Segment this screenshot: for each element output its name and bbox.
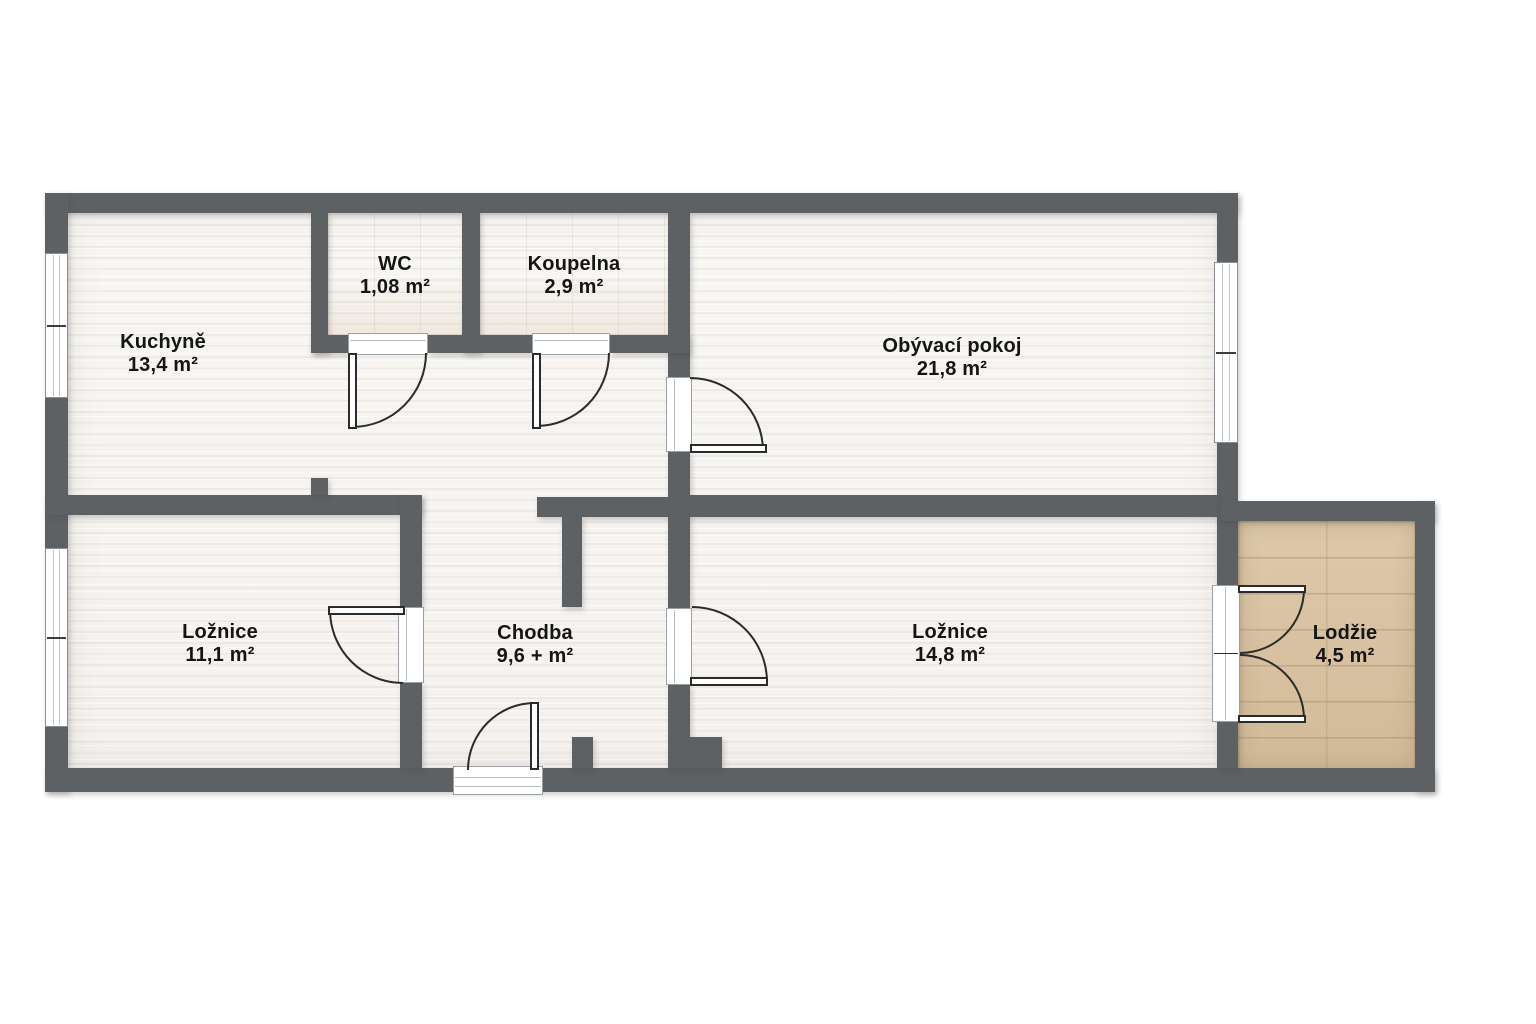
wall-hall-bedroom2-upper	[668, 517, 690, 608]
room-area: 14,8 m²	[912, 644, 988, 667]
threshold-line	[406, 609, 407, 681]
wall-wc-bathroom	[462, 213, 480, 353]
window-divider	[47, 637, 66, 639]
wall-bedroom2-pillar	[690, 737, 722, 768]
window-kitchen	[45, 253, 68, 398]
window-divider	[1216, 352, 1236, 354]
wall-living-bedroom2	[690, 495, 1217, 517]
threshold-wc-door	[348, 333, 428, 355]
room-label-living-room: Obývací pokoj 21,8 m²	[882, 335, 1021, 381]
room-name: Ložnice	[182, 621, 258, 644]
threshold-line	[534, 340, 608, 341]
door-leaf-bedroom1	[328, 606, 405, 615]
room-area: 13,4 m²	[120, 354, 206, 377]
room-name: Kuchyně	[120, 331, 206, 354]
room-area: 1,08 m²	[360, 276, 430, 299]
wall-loggia-right	[1415, 501, 1435, 792]
room-label-bedroom2: Ložnice 14,8 m²	[912, 621, 988, 667]
room-area: 21,8 m²	[882, 358, 1021, 381]
wall-wcblock-bottom-a	[311, 335, 348, 353]
room-name: Lodžie	[1313, 622, 1378, 645]
window-living-room	[1214, 262, 1238, 443]
wall-kitchen-bedroom1	[45, 495, 422, 515]
room-label-bathroom: Koupelna 2,9 m²	[528, 253, 621, 299]
wall-kitchen-passage-stub	[311, 478, 328, 495]
wall-hall-closet-stem	[562, 517, 582, 607]
wall-loggia-top	[1217, 501, 1435, 521]
threshold-entrance-door	[453, 766, 543, 795]
threshold-line	[674, 610, 675, 683]
room-area: 11,1 m²	[182, 644, 258, 667]
wall-bedroom1-hall-lower	[400, 683, 422, 768]
floor-plan: Kuchyně 13,4 m² WC 1,08 m² Koupelna 2,9 …	[0, 0, 1536, 1024]
threshold-bathroom-door	[532, 333, 610, 355]
room-name: Obývací pokoj	[882, 335, 1021, 358]
door-leaf-wc	[348, 353, 357, 429]
window-divider	[47, 325, 66, 327]
room-area: 4,5 m²	[1313, 645, 1378, 668]
door-leaf-loggia-lower	[1238, 715, 1306, 723]
room-label-loggia: Lodžie 4,5 m²	[1313, 622, 1378, 668]
room-label-wc: WC 1,08 m²	[360, 253, 430, 299]
room-label-kitchen: Kuchyně 13,4 m²	[120, 331, 206, 377]
door-leaf-loggia-upper	[1238, 585, 1306, 593]
threshold-living-door	[666, 377, 692, 452]
wall-bedroom1-hall-upper	[400, 495, 422, 607]
room-label-bedroom1: Ložnice 11,1 m²	[182, 621, 258, 667]
wall-wcblock-bottom-c	[610, 335, 690, 353]
threshold-line	[674, 379, 675, 450]
door-leaf-bedroom2	[690, 677, 768, 686]
threshold-loggia-french-door	[1212, 585, 1240, 722]
wall-hall-closet-top	[537, 497, 690, 517]
room-name: WC	[360, 253, 430, 276]
room-area: 2,9 m²	[528, 276, 621, 299]
wall-entry-pillar	[572, 737, 593, 768]
french-door-center-line	[1214, 653, 1238, 654]
door-leaf-living	[690, 444, 767, 453]
threshold-bedroom2-door	[666, 608, 692, 685]
room-name: Koupelna	[528, 253, 621, 276]
door-leaf-bathroom	[532, 353, 541, 429]
wall-exterior-top	[45, 193, 1238, 213]
wall-kitchen-wc	[311, 213, 328, 353]
threshold-line	[455, 786, 541, 787]
wall-exterior-bottom	[45, 768, 1435, 792]
room-area: 9,6 + m²	[497, 645, 574, 668]
window-bedroom1	[45, 548, 68, 727]
wall-hall-bedroom2-lower	[668, 685, 690, 768]
room-label-hallway: Chodba 9,6 + m²	[497, 622, 574, 668]
threshold-line	[455, 777, 541, 778]
room-name: Chodba	[497, 622, 574, 645]
door-leaf-entrance	[530, 702, 539, 770]
threshold-line	[350, 340, 426, 341]
wall-wcblock-bottom-b	[428, 335, 532, 353]
room-name: Ložnice	[912, 621, 988, 644]
